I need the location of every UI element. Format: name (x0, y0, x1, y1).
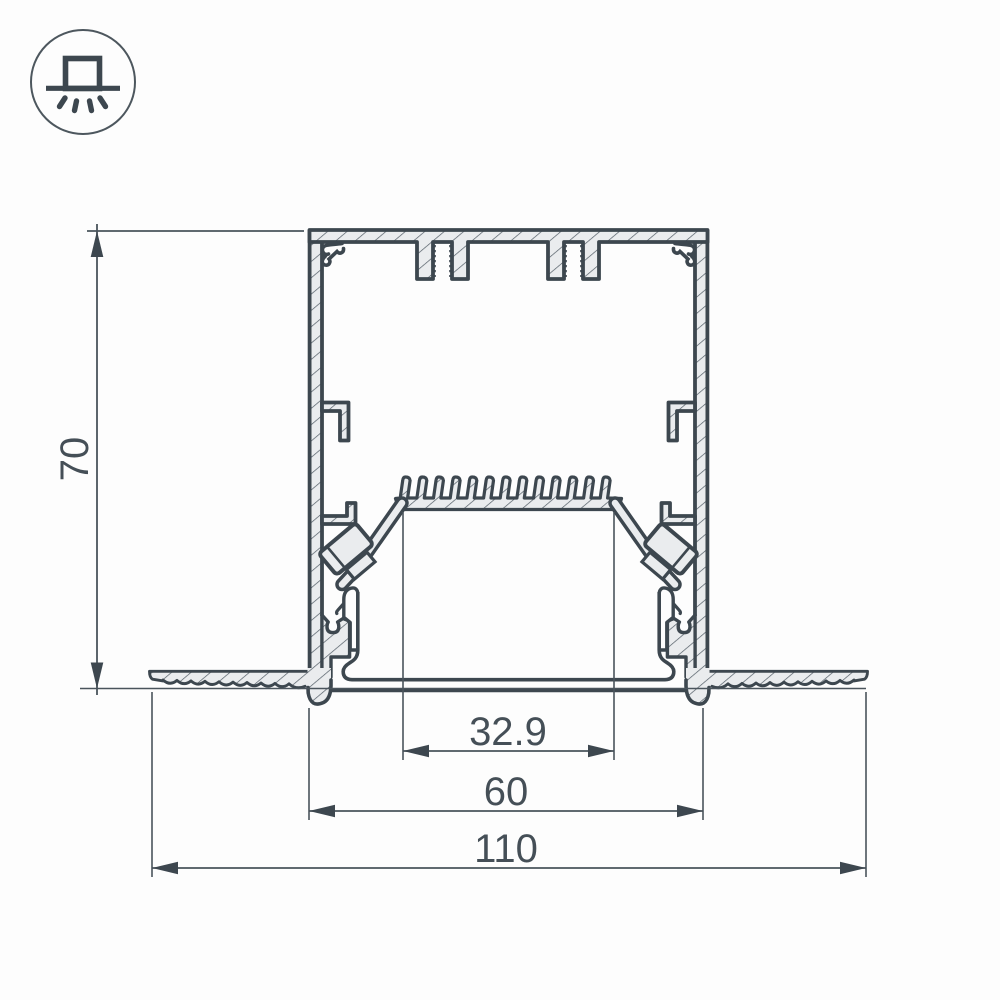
svg-text:110: 110 (474, 827, 538, 871)
svg-text:32.9: 32.9 (469, 710, 547, 754)
svg-text:60: 60 (484, 770, 529, 814)
svg-text:70: 70 (53, 437, 97, 482)
